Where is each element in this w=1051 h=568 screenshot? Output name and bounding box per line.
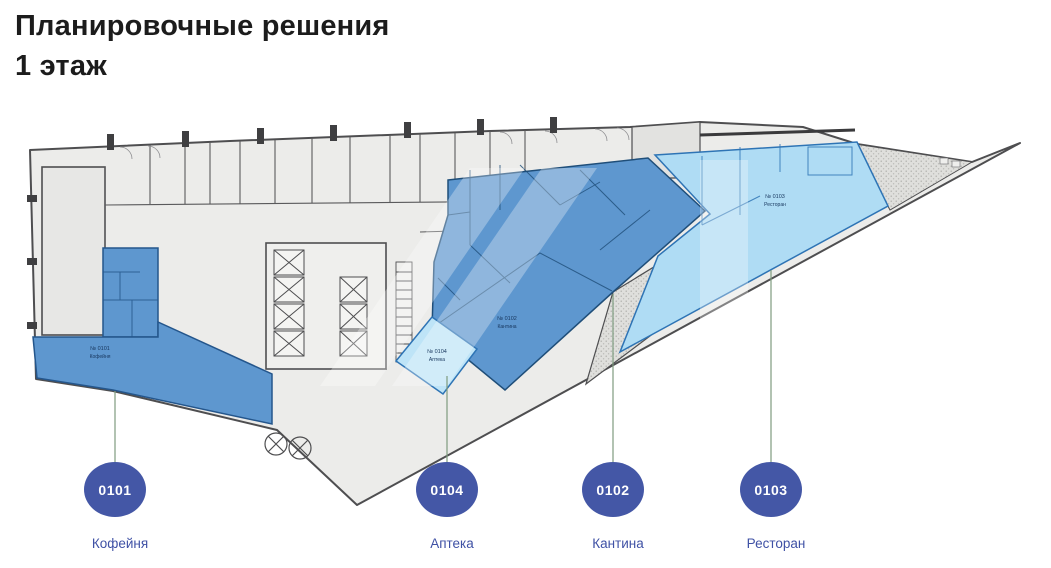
coffee-tag-num: № 0101: [90, 346, 110, 352]
unit-circle-0103[interactable]: 0103: [740, 462, 802, 517]
pharmacy-tag-name: Аптека: [429, 357, 445, 363]
restaurant-tag-name: Ресторан: [764, 202, 786, 208]
unit-label-0103: Ресторан: [711, 536, 841, 551]
cantina-tag-name: Кантина: [497, 324, 516, 330]
pharmacy-tag-num: № 0104: [427, 349, 447, 355]
cantina-tag-num: № 0102: [497, 316, 517, 322]
floor-plan: № 0101 Кофейня № 0104 Аптека № 0102 Кант…: [0, 0, 1051, 568]
unit-label-0104: Аптека: [387, 536, 517, 551]
unit-circle-0102[interactable]: 0102: [582, 462, 644, 517]
restaurant-tag-num: № 0103: [765, 194, 785, 200]
coffee-tag-name: Кофейня: [90, 353, 111, 360]
unit-label-0102: Кантина: [553, 536, 683, 551]
unit-circle-0104[interactable]: 0104: [416, 462, 478, 517]
fixture: [940, 158, 948, 164]
room-large-left: [42, 167, 105, 335]
slide: Планировочные решения 1 этаж: [0, 0, 1051, 568]
fixture: [952, 161, 960, 167]
unit-label-0101: Кофейня: [55, 536, 185, 551]
unit-circle-0101[interactable]: 0101: [84, 462, 146, 517]
